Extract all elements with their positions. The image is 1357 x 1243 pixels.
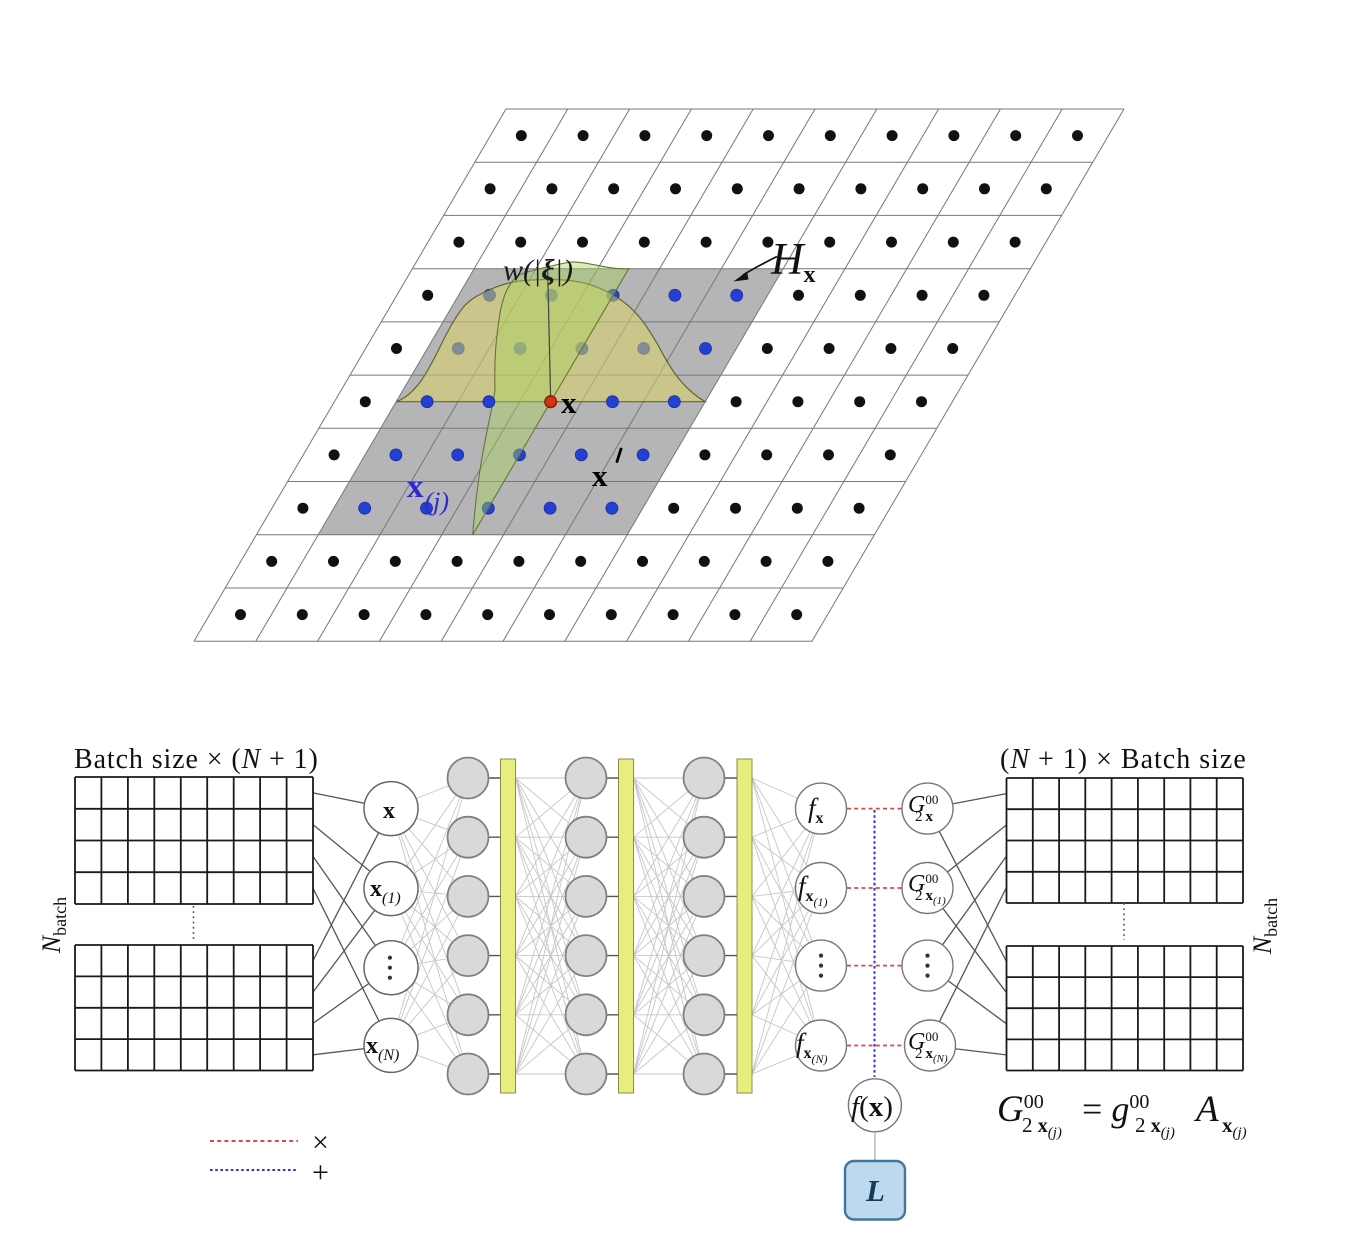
- svg-text:x: x: [561, 385, 577, 420]
- svg-text:×: ×: [312, 1126, 329, 1159]
- svg-text:(N + 1) × Batch size: (N + 1) × Batch size: [1000, 744, 1247, 775]
- svg-text:x: x: [592, 458, 608, 493]
- svg-text:+: +: [312, 1156, 329, 1189]
- svg-text:f(x): f(x): [851, 1091, 893, 1123]
- svg-text:Batch size × (N + 1): Batch size × (N + 1): [74, 744, 319, 775]
- svg-text:L: L: [865, 1173, 885, 1208]
- svg-text:x: x: [383, 798, 395, 824]
- svg-text:A: A: [1193, 1089, 1219, 1130]
- svg-text:w(|ξ|): w(|ξ|): [503, 254, 573, 287]
